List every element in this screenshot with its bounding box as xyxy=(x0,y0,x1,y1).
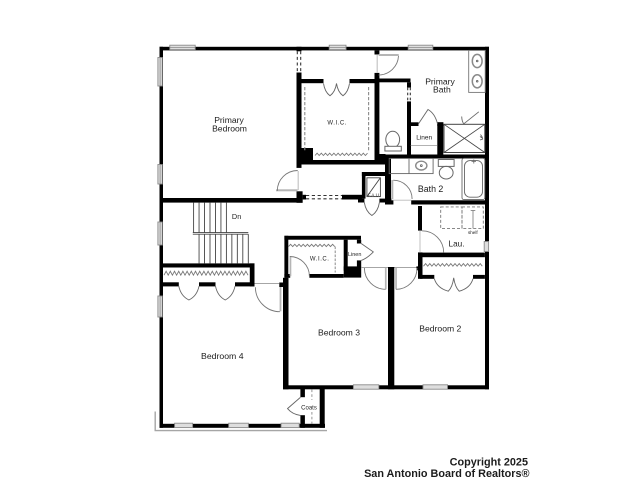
svg-text:Bath 2: Bath 2 xyxy=(418,184,444,194)
svg-text:F.A.U.: F.A.U. xyxy=(368,192,380,197)
svg-text:Dn: Dn xyxy=(232,212,241,221)
svg-text:Linen: Linen xyxy=(416,135,432,142)
svg-text:Lau.: Lau. xyxy=(449,239,465,248)
svg-text:Coats: Coats xyxy=(301,405,317,411)
svg-text:Bedroom 2: Bedroom 2 xyxy=(419,324,461,334)
svg-text:San Antonio Board of Realtors®: San Antonio Board of Realtors® xyxy=(364,468,529,480)
svg-text:Bath: Bath xyxy=(433,85,451,95)
svg-text:Bedroom 4: Bedroom 4 xyxy=(201,351,244,361)
svg-text:Bedroom 3: Bedroom 3 xyxy=(318,328,360,338)
svg-text:W.I.C.: W.I.C. xyxy=(310,256,330,262)
svg-text:Bedroom: Bedroom xyxy=(212,123,247,133)
svg-text:W.I.C.: W.I.C. xyxy=(327,121,347,127)
svg-text:shelf: shelf xyxy=(468,230,478,235)
svg-text:Copyright 2025: Copyright 2025 xyxy=(450,456,528,468)
svg-text:Linen: Linen xyxy=(348,252,361,258)
